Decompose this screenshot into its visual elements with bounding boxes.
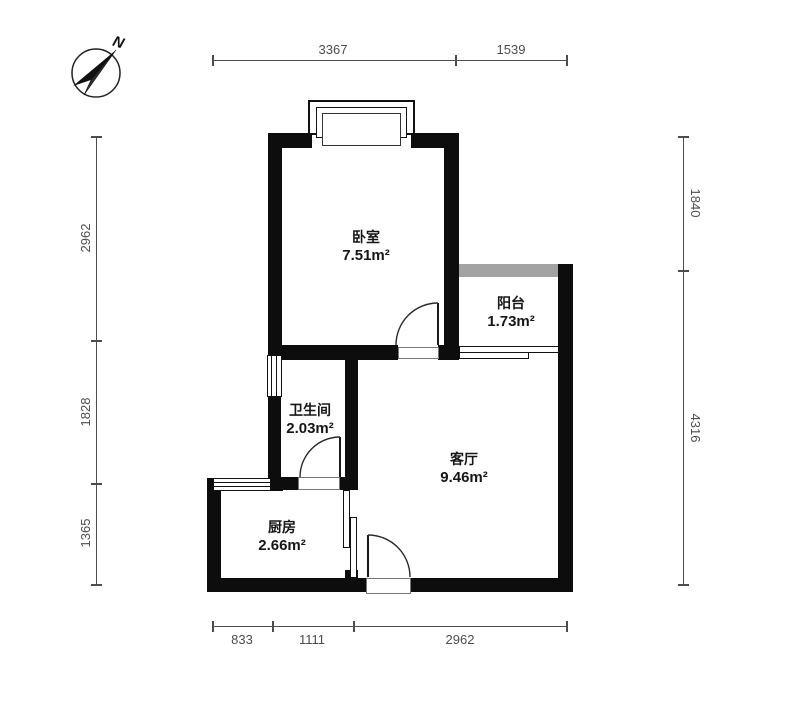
dimension-tick [91, 483, 102, 485]
dimension-value-right-2: 4316 [687, 398, 703, 458]
dimension-value-left-3: 1365 [78, 503, 94, 563]
dimension-tick [566, 621, 568, 632]
bathroom-window-line [276, 356, 277, 396]
room-name: 客厅 [404, 450, 524, 468]
bedroom-door-icon [394, 301, 442, 349]
room-area: 1.73m² [451, 312, 571, 331]
bedroom-bay-window-inner-icon [322, 113, 401, 146]
kitchen-sliding-door-panel [350, 517, 357, 578]
dimension-value-left-2: 1828 [78, 382, 94, 442]
balcony-sliding-door-panel [459, 352, 529, 359]
dimension-line-right [683, 136, 684, 585]
bathroom-door-icon [295, 435, 345, 481]
dimension-tick [212, 621, 214, 632]
room-name: 厨房 [222, 518, 342, 536]
dimension-tick [678, 270, 689, 272]
wall-bottom-left [207, 578, 368, 592]
room-label-bedroom: 卧室 7.51m² [306, 228, 426, 265]
kitchen-sliding-door-panel [343, 490, 350, 548]
dimension-value-top-1: 3367 [303, 42, 363, 58]
room-area: 2.66m² [222, 536, 342, 555]
dimension-line-bottom [212, 626, 567, 627]
room-name: 卫生间 [250, 401, 370, 419]
dimension-tick [455, 55, 457, 66]
wall-bottom-right [410, 578, 573, 592]
dimension-tick [678, 136, 689, 138]
dimension-tick [91, 136, 102, 138]
room-area: 2.03m² [250, 419, 370, 438]
wall-bedroom-left [268, 133, 282, 360]
room-area: 9.46m² [404, 468, 524, 487]
room-name: 阳台 [451, 294, 571, 312]
dimension-value-bottom-2: 1111 [282, 632, 342, 648]
kitchen-window-line [214, 482, 270, 483]
dimension-tick [91, 340, 102, 342]
kitchen-window-line [214, 486, 270, 487]
dimension-value-right-1: 1840 [687, 173, 703, 233]
dimension-tick [272, 621, 274, 632]
room-label-bathroom: 卫生间 2.03m² [250, 401, 370, 438]
balcony-open-edge [459, 264, 559, 277]
dimension-value-top-2: 1539 [481, 42, 541, 58]
compass-needle-lower [84, 50, 116, 95]
dimension-tick [678, 584, 689, 586]
wall-kitchen-left [207, 478, 221, 592]
dimension-line-top [212, 60, 567, 61]
floor-plan: N [0, 0, 799, 727]
dimension-tick [566, 55, 568, 66]
compass-icon: N [58, 32, 142, 114]
kitchen-window-icon [213, 478, 271, 491]
dimension-tick [212, 55, 214, 66]
entry-door-icon [365, 532, 415, 582]
room-label-kitchen: 厨房 2.66m² [222, 518, 342, 555]
dimension-value-bottom-3: 2962 [430, 632, 490, 648]
room-area: 7.51m² [306, 246, 426, 265]
room-label-living: 客厅 9.46m² [404, 450, 524, 487]
room-name: 卧室 [306, 228, 426, 246]
bathroom-window-icon [267, 355, 282, 397]
compass-north-label: N [110, 33, 127, 53]
dimension-line-left [96, 136, 97, 585]
dimension-value-bottom-1: 833 [212, 632, 272, 648]
dimension-tick [91, 584, 102, 586]
wall-bedroom-bottom-left [268, 345, 398, 360]
dimension-value-left-1: 2962 [78, 208, 94, 268]
room-label-balcony: 阳台 1.73m² [451, 294, 571, 331]
dimension-tick [353, 621, 355, 632]
bathroom-window-line [271, 356, 272, 396]
